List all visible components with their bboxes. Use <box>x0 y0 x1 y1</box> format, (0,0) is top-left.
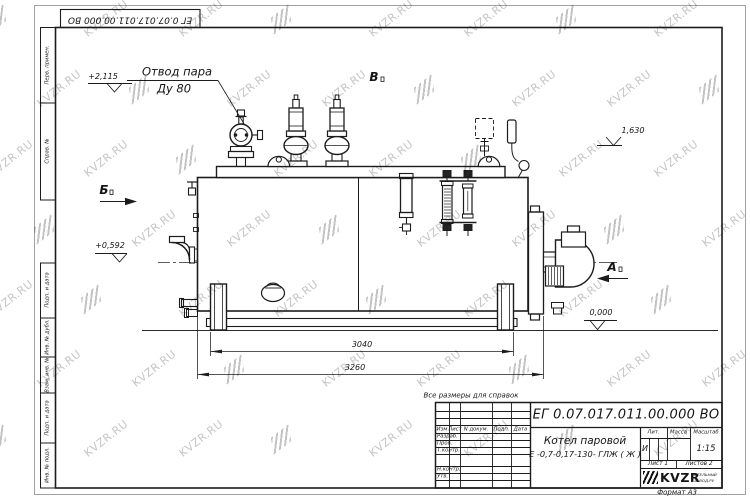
level-mark-value: 0,000 <box>590 309 613 317</box>
doc-number-top: ЕГ 0.07.017.011.00.000 ВО <box>68 14 192 23</box>
level-mark-value: 1,630 <box>622 127 645 135</box>
margin-label: Взам. инв. № <box>45 357 50 392</box>
row-t-kontr: Т.контр. <box>437 448 460 453</box>
company-name-line2: ЗАВОД.РУ <box>694 479 714 483</box>
margin-label: Инв. № дубл. <box>45 319 50 355</box>
sheet-number: Лист 1 <box>648 462 668 468</box>
lit-header: Лит. <box>647 430 659 435</box>
margin-label: Инв. № подл. <box>45 447 50 483</box>
view-label-v: В <box>369 71 378 83</box>
callout-steam-outlet: Отвод пара <box>142 66 212 78</box>
sheets-total: Листов 2 <box>685 462 712 468</box>
level-mark-value: +0,592 <box>95 242 125 250</box>
reference-note: Все размеры для справок <box>424 393 519 400</box>
callout-dn80: Ду 80 <box>157 83 191 95</box>
dimension-value: 3260 <box>345 364 365 372</box>
row-n-kontr: Н.контр. <box>437 467 461 472</box>
row-prov: Пров. <box>437 441 452 446</box>
row-utv: Утв. <box>437 474 448 479</box>
scale-value: 1:15 <box>696 445 715 454</box>
labels: ЕГ 0.07.017.011.00.000 ВО Перв. примен. … <box>0 0 750 500</box>
company-name-line1: КОТЕЛЬНЫЙ <box>691 473 716 477</box>
drawing-sheet: ЕГ 0.07.017.011.00.000 ВО Перв. примен. … <box>0 0 750 500</box>
format-note: Формат А3 <box>657 490 697 497</box>
lit-value: И <box>642 445 648 453</box>
title-block-doc-number: ЕГ 0.07.017.011.00.000 ВО <box>533 408 720 421</box>
margin-label: Справ. № <box>45 138 50 163</box>
view-label-b: Б <box>99 184 108 196</box>
product-name: Котел паровой <box>544 436 626 447</box>
masshtab-header: Масштаб <box>693 430 718 435</box>
margin-label: Перв. примен. <box>45 46 50 85</box>
kvzr-logo-icon <box>643 471 658 484</box>
product-code: Е -0,7-0,17-130- ГЛЖ ( Ж ) <box>529 449 641 457</box>
margin-label: Подп. и дата <box>45 272 50 307</box>
col-n-dokum: N докум. <box>464 427 489 432</box>
view-label-a: А <box>607 261 616 273</box>
col-podp: Подп. <box>493 427 509 432</box>
col-list: Лист <box>448 427 461 432</box>
dimension-value: 3040 <box>352 341 372 349</box>
margin-label: Подп. и дата <box>45 400 50 435</box>
level-mark-value: +2,115 <box>88 73 118 81</box>
massa-header: Масса <box>670 430 687 435</box>
row-razrab: Разраб. <box>437 434 458 439</box>
col-izm: Изм <box>437 427 448 432</box>
col-data: Дата <box>514 427 528 432</box>
